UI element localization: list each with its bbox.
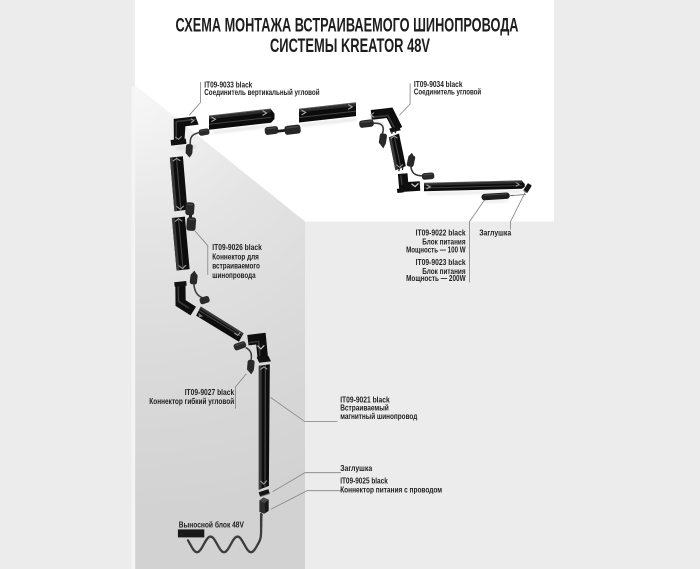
svg-text:Коннектор питания с проводом: Коннектор питания с проводом xyxy=(340,485,442,495)
svg-text:Коннектор гибкий угловой: Коннектор гибкий угловой xyxy=(149,396,234,406)
svg-text:магнитный шинопровод: магнитный шинопровод xyxy=(340,411,418,421)
svg-text:Заглушка: Заглушка xyxy=(479,228,511,238)
svg-text:СИСТЕМЫ KREATOR 48V: СИСТЕМЫ KREATOR 48V xyxy=(270,36,430,57)
svg-text:Заглушка: Заглушка xyxy=(340,463,372,473)
svg-text:Выносной блок 48V: Выносной блок 48V xyxy=(179,520,244,530)
svg-text:Соединитель вертикальный углов: Соединитель вертикальный угловой xyxy=(204,87,319,97)
svg-text:Мощность — 100 W: Мощность — 100 W xyxy=(406,245,466,255)
svg-text:СХЕМА МОНТАЖА ВСТРАИВАЕМОГО ШИ: СХЕМА МОНТАЖА ВСТРАИВАЕМОГО ШИНОПРОВОДА xyxy=(176,16,519,37)
svg-text:Соединитель угловой: Соединитель угловой xyxy=(414,87,481,97)
svg-text:шинопровода: шинопровода xyxy=(212,270,255,280)
svg-text:Мощность — 200W: Мощность — 200W xyxy=(406,273,466,283)
